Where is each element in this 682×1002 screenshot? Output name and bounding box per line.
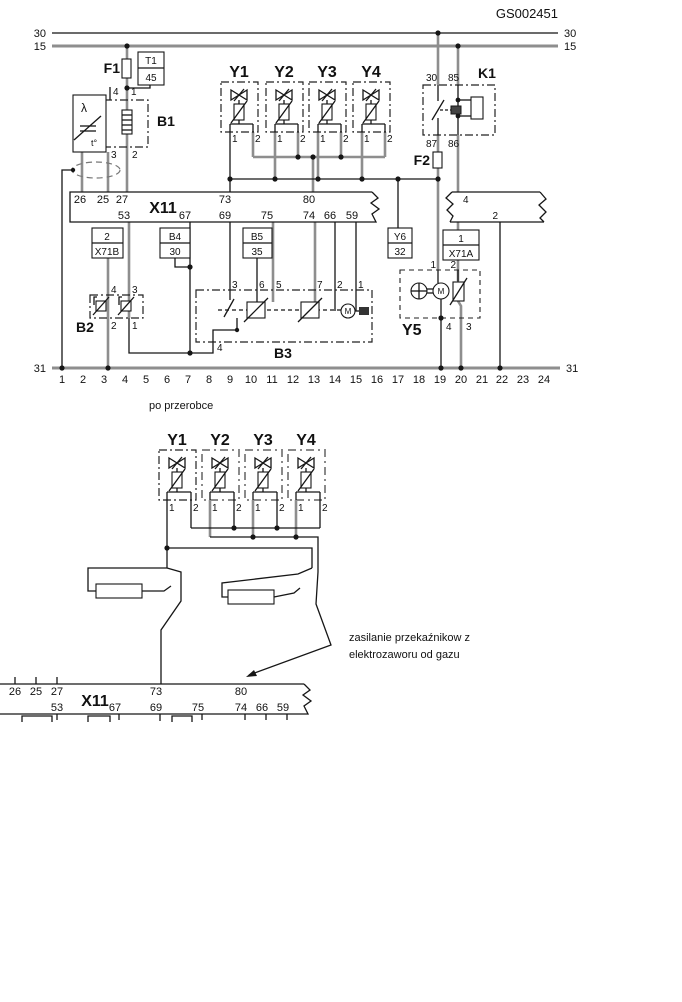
valve-y3-name: Y3 (317, 64, 337, 81)
x11b-pin-80: 80 (235, 686, 247, 698)
track-numbers: 1 2 3 4 5 6 7 8 9 10 11 12 13 14 15 16 1… (59, 374, 550, 386)
bus-15-label-left: 15 (34, 41, 46, 53)
b1-pin1: 1 (131, 87, 137, 98)
track-5: 5 (143, 374, 149, 386)
track-11: 11 (266, 374, 277, 386)
track-22: 22 (496, 374, 508, 386)
diagram-code: GS002451 (496, 6, 558, 21)
b2-pin1: 1 (132, 321, 138, 332)
fuse-f2-label: F2 (414, 152, 431, 168)
b3-pin2: 2 (337, 280, 343, 291)
x11-pin-66: 66 (324, 210, 336, 222)
x11-pin-69: 69 (219, 210, 231, 222)
connector-x11-top: X11 26 25 27 73 80 53 67 69 75 74 66 59 (70, 192, 379, 222)
connector-x11-bottom: X11 26 25 27 73 80 53 67 69 75 74 66 59 (0, 677, 311, 722)
y5-name: Y5 (402, 322, 422, 339)
x71a-pin: 1 (458, 234, 464, 245)
b1-pin4: 4 (113, 87, 119, 98)
b5-pin: 35 (251, 247, 263, 258)
x11-pin-75: 75 (261, 210, 273, 222)
ref-boxes: 2 X71B B4 30 B5 35 Y6 32 1 X71A (92, 228, 479, 260)
d2-wiring (88, 500, 331, 684)
x11-pin-53: 53 (118, 210, 130, 222)
x11-pin-67: 67 (179, 210, 191, 222)
x11b-pin-66: 66 (256, 702, 268, 714)
track-2: 2 (80, 374, 86, 386)
k1-pin86: 86 (448, 139, 460, 150)
x11b-pin-53: 53 (51, 702, 63, 714)
track-14: 14 (329, 374, 341, 386)
valve-y3-pin2: 2 (343, 134, 349, 145)
track-21: 21 (476, 374, 488, 386)
t1-pin: 45 (145, 73, 157, 84)
valve-y2-pin1: 1 (277, 134, 283, 145)
track-18: 18 (413, 374, 425, 386)
caption-po-przerobce: po przerobce (149, 400, 213, 412)
x11b-pin-67: 67 (109, 702, 121, 714)
x71a-name: X71A (449, 249, 474, 260)
bus-31-label-right: 31 (566, 363, 578, 375)
relay-k1: K1 30 85 87 86 (423, 65, 496, 150)
k1-pin87: 87 (426, 139, 438, 150)
x11b-pin-59: 59 (277, 702, 289, 714)
y5-motor-label: M (438, 287, 445, 296)
b3-pin7: 7 (317, 280, 323, 291)
d2-valve-y3-pin1: 1 (255, 503, 261, 514)
track-3: 3 (101, 374, 107, 386)
fuse-f2-symbol (433, 152, 442, 168)
d2-valve-y1-pin1: 1 (169, 503, 175, 514)
valve-y4-pin1: 1 (364, 134, 370, 145)
b3-pin1: 1 (358, 280, 364, 291)
x71b-name: X71B (95, 247, 120, 258)
b3-pin6: 6 (259, 280, 265, 291)
track-7: 7 (185, 374, 191, 386)
valve-y1-pin2: 2 (255, 134, 261, 145)
x11b-pin-74: 74 (235, 702, 247, 714)
track-17: 17 (392, 374, 404, 386)
x11b-pin-27: 27 (51, 686, 63, 698)
x11-pin-25: 25 (97, 194, 109, 206)
track-12: 12 (287, 374, 299, 386)
x11b-pin-25: 25 (30, 686, 42, 698)
x11b-pin-26: 26 (9, 686, 21, 698)
component-b1: λ t° B1 4 1 3 2 (72, 87, 175, 178)
b2-pin2: 2 (111, 321, 117, 332)
y6-pin: 32 (394, 247, 406, 258)
y5-pin1: 1 (430, 260, 436, 271)
track-8: 8 (206, 374, 212, 386)
valve-y1-name: Y1 (229, 64, 249, 81)
bus-30-label-left: 30 (34, 28, 46, 40)
track-4: 4 (122, 374, 128, 386)
track-9: 9 (227, 374, 233, 386)
track-20: 20 (455, 374, 467, 386)
track-13: 13 (308, 374, 320, 386)
b3-pin5: 5 (276, 280, 282, 291)
valve-y2-pin2: 2 (300, 134, 306, 145)
track-15: 15 (350, 374, 362, 386)
b1-pin3: 3 (111, 150, 117, 161)
b3-motor-label: M (345, 307, 352, 316)
valve-y2-name: Y2 (274, 64, 294, 81)
component-b2: B2 4 3 2 1 (76, 285, 143, 335)
conn-pin-2: 2 (492, 211, 498, 222)
d2-valve-y1-pin2: 2 (193, 503, 199, 514)
y5-pin3: 3 (466, 322, 472, 333)
x71b-pin: 2 (104, 232, 110, 243)
d1-valves: Y1 1 2 Y2 1 2 Y3 (221, 64, 393, 145)
b3-name: B3 (274, 345, 292, 361)
note-line1: zasilanie przekaźnikow z (349, 632, 470, 644)
d2-valve-y2-pin2: 2 (236, 503, 242, 514)
bus-15-label-right: 15 (564, 41, 576, 53)
valve-y4-pin2: 2 (387, 134, 393, 145)
track-16: 16 (371, 374, 383, 386)
d2-valve-y2-name: Y2 (210, 432, 230, 449)
d2-valve-y1-name: Y1 (167, 432, 187, 449)
x11-pin-26: 26 (74, 194, 86, 206)
b2-pin4: 4 (111, 285, 117, 296)
connector-piece: 4 2 (446, 192, 546, 222)
track-1: 1 (59, 374, 65, 386)
x11b-pin-69: 69 (150, 702, 162, 714)
b3-pin4: 4 (217, 343, 223, 354)
x11-pin-80: 80 (303, 194, 315, 206)
d2-valve-y3-pin2: 2 (279, 503, 285, 514)
d2-valve-y3-name: Y3 (253, 432, 273, 449)
fuse-f1-label: F1 (104, 60, 121, 76)
track-10: 10 (245, 374, 257, 386)
wiring-diagram: GS002451 30 30 15 15 31 31 (0, 0, 682, 1002)
note-line2: elektrozaworu od gazu (349, 649, 460, 661)
d2-valves: Y1 1 2 Y2 1 2 Y3 (159, 432, 328, 514)
y5-pin4: 4 (446, 322, 452, 333)
y5-pin2: 2 (450, 260, 456, 271)
bus-30-label-right: 30 (564, 28, 576, 40)
k1-pin85: 85 (448, 73, 460, 84)
k1-pin30: 30 (426, 73, 438, 84)
t1-name: T1 (145, 56, 157, 67)
track-19: 19 (434, 374, 446, 386)
valve-y4-name: Y4 (361, 64, 381, 81)
bus-31-label-left: 31 (34, 363, 46, 375)
d2-valve-y4-pin2: 2 (322, 503, 328, 514)
d2-valve-y2-pin1: 1 (212, 503, 218, 514)
x11b-pin-75: 75 (192, 702, 204, 714)
device-t1: T1 45 (138, 52, 164, 85)
b1-lambda-symbol: λ (81, 101, 87, 115)
b5-name: B5 (251, 232, 264, 243)
x11b-name: X11 (81, 693, 109, 710)
component-b3: B3 3 6 5 7 2 1 4 M (196, 280, 372, 361)
x11b-pin-73: 73 (150, 686, 162, 698)
track-6: 6 (164, 374, 170, 386)
valve-y3-pin1: 1 (320, 134, 326, 145)
track-23: 23 (517, 374, 529, 386)
b1-pin2: 2 (132, 150, 138, 161)
b4-name: B4 (169, 232, 182, 243)
x11-pin-73: 73 (219, 194, 231, 206)
x11-pin-59: 59 (346, 210, 358, 222)
y6-name: Y6 (394, 232, 407, 243)
valve-y1-pin1: 1 (232, 134, 238, 145)
b2-name: B2 (76, 319, 94, 335)
x11-pin-74: 74 (303, 210, 315, 222)
b1-temp-symbol: t° (91, 138, 98, 148)
b3-pin3: 3 (232, 280, 238, 291)
d2-valve-y4-name: Y4 (296, 432, 316, 449)
arrow-to-pin80 (246, 670, 257, 677)
conn-pin-4: 4 (463, 195, 469, 206)
fuse-f1-symbol (122, 59, 131, 78)
component-y5: Y5 1 2 4 3 M (400, 260, 480, 339)
x11-pin-27: 27 (116, 194, 128, 206)
d2-valve-y4-pin1: 1 (298, 503, 304, 514)
track-24: 24 (538, 374, 550, 386)
k1-name: K1 (478, 65, 496, 81)
b1-name: B1 (157, 113, 175, 129)
x11-name: X11 (149, 200, 177, 217)
b2-pin3: 3 (132, 285, 138, 296)
shield-oval (72, 162, 120, 178)
b4-pin: 30 (169, 247, 181, 258)
